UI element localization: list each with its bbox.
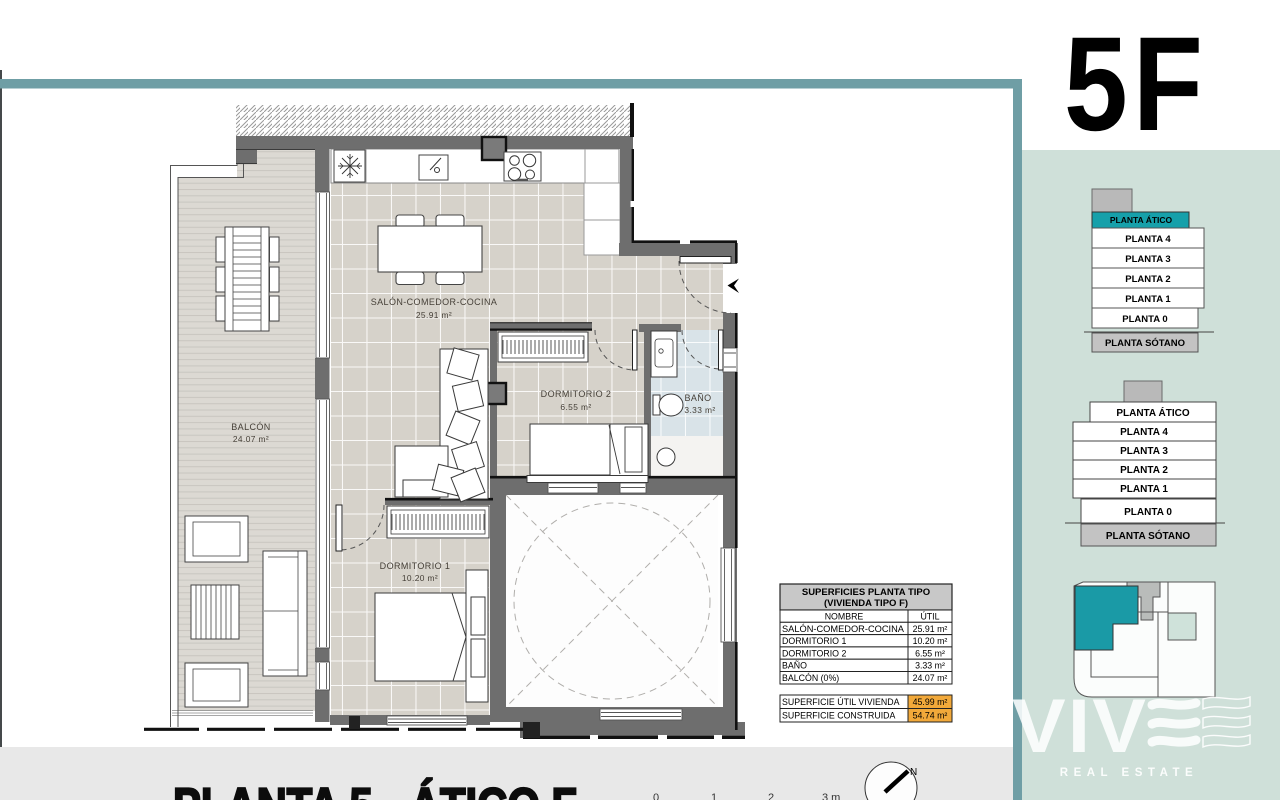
svg-text:2: 2	[768, 792, 774, 800]
svg-text:24.07 m²: 24.07 m²	[233, 434, 269, 444]
svg-text:25.91 m²: 25.91 m²	[913, 624, 948, 634]
svg-text:54.74 m²: 54.74 m²	[913, 711, 948, 721]
svg-text:SUPERFICIES PLANTA TIPO: SUPERFICIES PLANTA TIPO	[802, 587, 930, 598]
svg-text:DORMITORIO 2: DORMITORIO 2	[782, 648, 846, 658]
svg-text:PLANTA SÓTANO: PLANTA SÓTANO	[1106, 529, 1190, 542]
svg-text:6.55 m²: 6.55 m²	[560, 402, 591, 412]
svg-text:DORMITORIO 1: DORMITORIO 1	[782, 636, 846, 646]
svg-text:0: 0	[653, 792, 659, 800]
svg-text:PLANTA 0: PLANTA 0	[1124, 507, 1172, 518]
svg-text:3 m: 3 m	[822, 792, 840, 800]
svg-text:ÚTIL: ÚTIL	[920, 612, 939, 622]
svg-text:PLANTA 5 - ÁTICO F: PLANTA 5 - ÁTICO F	[173, 778, 577, 800]
svg-text:PLANTA 1: PLANTA 1	[1120, 484, 1168, 495]
svg-text:BAÑO: BAÑO	[684, 393, 711, 403]
svg-text:PLANTA 3: PLANTA 3	[1120, 446, 1168, 457]
svg-text:PLANTA ÁTICO: PLANTA ÁTICO	[1116, 406, 1190, 419]
svg-text:PLANTA SÓTANO: PLANTA SÓTANO	[1105, 337, 1185, 349]
svg-text:PLANTA 3: PLANTA 3	[1125, 254, 1170, 265]
svg-text:PLANTA ÁTICO: PLANTA ÁTICO	[1110, 215, 1173, 225]
svg-text:24.07 m²: 24.07 m²	[913, 673, 948, 683]
svg-text:5F: 5F	[1064, 10, 1208, 159]
svg-text:DORMITORIO 2: DORMITORIO 2	[541, 389, 612, 399]
svg-text:PLANTA 4: PLANTA 4	[1120, 427, 1168, 438]
svg-text:BALCÓN: BALCÓN	[231, 422, 270, 432]
svg-text:VIV: VIV	[1012, 684, 1148, 769]
svg-text:DORMITORIO 1: DORMITORIO 1	[380, 561, 451, 571]
svg-text:PLANTA 1: PLANTA 1	[1125, 294, 1171, 305]
svg-text:3.33 m²: 3.33 m²	[684, 405, 715, 415]
svg-text:(VIVIENDA TIPO F): (VIVIENDA TIPO F)	[824, 598, 908, 609]
svg-text:SUPERFICIE CONSTRUIDA: SUPERFICIE CONSTRUIDA	[782, 711, 896, 721]
svg-text:10.20 m²: 10.20 m²	[402, 573, 438, 583]
svg-text:3.33 m²: 3.33 m²	[915, 661, 945, 671]
svg-text:1: 1	[711, 792, 717, 800]
svg-text:REAL ESTATE: REAL ESTATE	[1060, 767, 1198, 779]
svg-text:SALÓN-COMEDOR-COCINA: SALÓN-COMEDOR-COCINA	[782, 624, 904, 634]
svg-text:45.99 m²: 45.99 m²	[913, 697, 948, 707]
svg-text:PLANTA 2: PLANTA 2	[1120, 465, 1168, 476]
svg-text:SUPERFICIE ÚTIL VIVIENDA: SUPERFICIE ÚTIL VIVIENDA	[782, 697, 900, 707]
svg-text:PLANTA 4: PLANTA 4	[1125, 234, 1171, 245]
svg-text:N: N	[910, 767, 917, 778]
svg-text:SALÓN-COMEDOR-COCINA: SALÓN-COMEDOR-COCINA	[371, 297, 498, 307]
svg-text:PLANTA 2: PLANTA 2	[1125, 274, 1170, 285]
svg-text:NOMBRE: NOMBRE	[825, 612, 864, 622]
svg-text:BALCÓN (0%): BALCÓN (0%)	[782, 673, 839, 683]
svg-text:6.55 m²: 6.55 m²	[915, 648, 945, 658]
svg-text:PLANTA 0: PLANTA 0	[1122, 314, 1167, 325]
svg-text:BAÑO: BAÑO	[782, 661, 807, 671]
svg-text:25.91 m²: 25.91 m²	[416, 310, 452, 320]
svg-text:10.20 m²: 10.20 m²	[913, 636, 948, 646]
